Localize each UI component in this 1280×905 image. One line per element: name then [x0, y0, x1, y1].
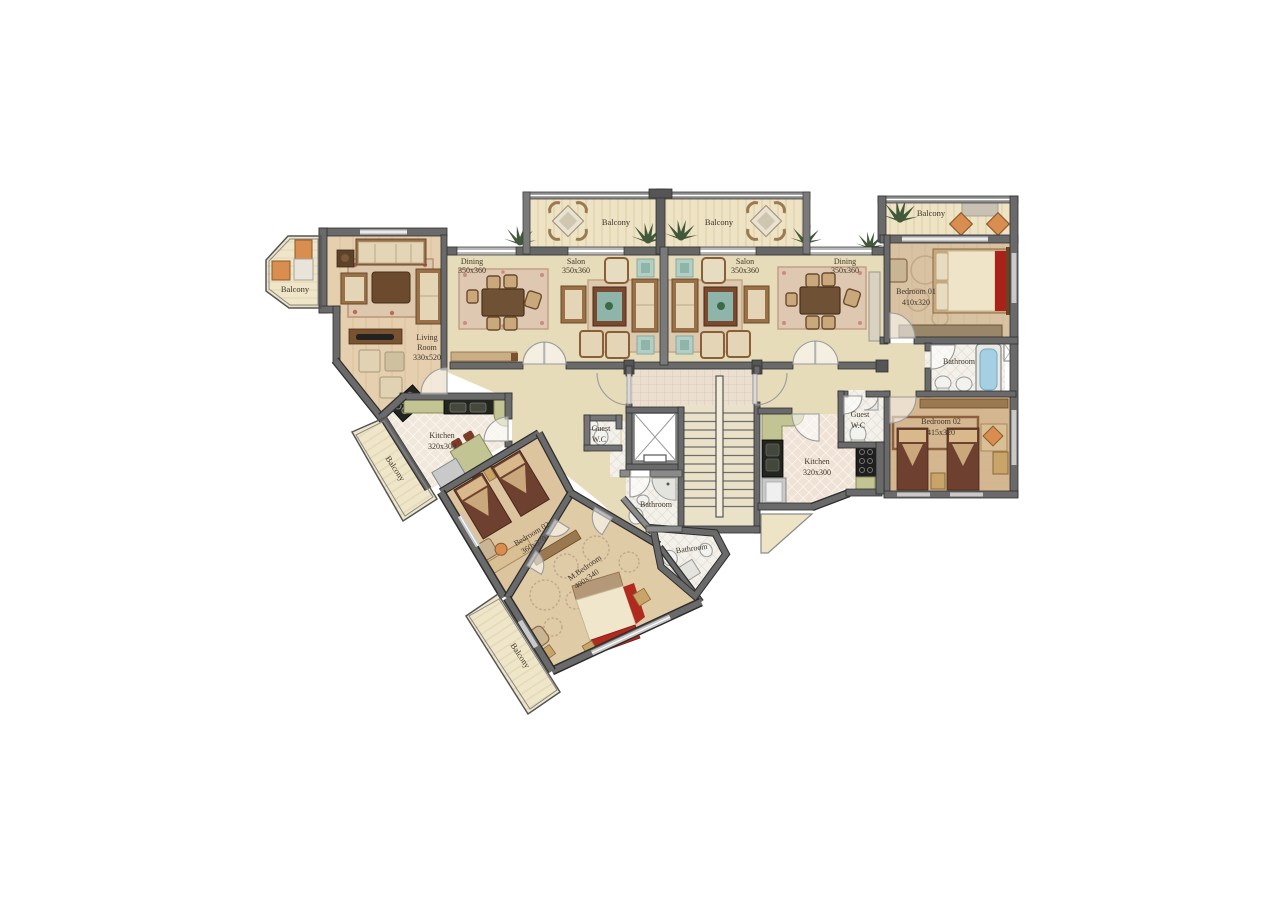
- svg-text:330x520: 330x520: [413, 353, 441, 362]
- svg-text:415x320: 415x320: [927, 428, 955, 437]
- svg-text:320x300: 320x300: [803, 468, 831, 477]
- svg-text:Salon: Salon: [567, 257, 585, 266]
- svg-text:W.C: W.C: [592, 435, 606, 444]
- svg-text:Dining: Dining: [834, 257, 856, 266]
- svg-text:Balcony: Balcony: [917, 208, 946, 218]
- svg-text:Room: Room: [417, 343, 437, 352]
- svg-text:Balcony: Balcony: [602, 217, 631, 227]
- svg-text:Dining: Dining: [461, 257, 483, 266]
- svg-text:Guest: Guest: [592, 424, 611, 433]
- svg-text:320x300: 320x300: [428, 442, 456, 451]
- svg-text:Bedroom 01: Bedroom 01: [896, 287, 936, 296]
- svg-text:Balcony: Balcony: [705, 217, 734, 227]
- svg-text:Balcony: Balcony: [281, 284, 310, 294]
- svg-text:350x360: 350x360: [458, 266, 486, 275]
- svg-text:Salon: Salon: [736, 257, 754, 266]
- svg-text:Guest: Guest: [851, 410, 870, 419]
- svg-text:Bedroom 02: Bedroom 02: [921, 417, 961, 426]
- svg-text:Bathroom: Bathroom: [640, 500, 673, 509]
- svg-text:W.C: W.C: [851, 421, 865, 430]
- svg-text:Bathroom: Bathroom: [943, 357, 976, 366]
- svg-text:350x360: 350x360: [831, 266, 859, 275]
- svg-text:350x360: 350x360: [731, 266, 759, 275]
- svg-text:Kitchen: Kitchen: [429, 431, 454, 440]
- svg-text:410x320: 410x320: [902, 298, 930, 307]
- svg-text:350x360: 350x360: [562, 266, 590, 275]
- svg-text:Kitchen: Kitchen: [804, 457, 829, 466]
- svg-text:Living: Living: [416, 333, 437, 342]
